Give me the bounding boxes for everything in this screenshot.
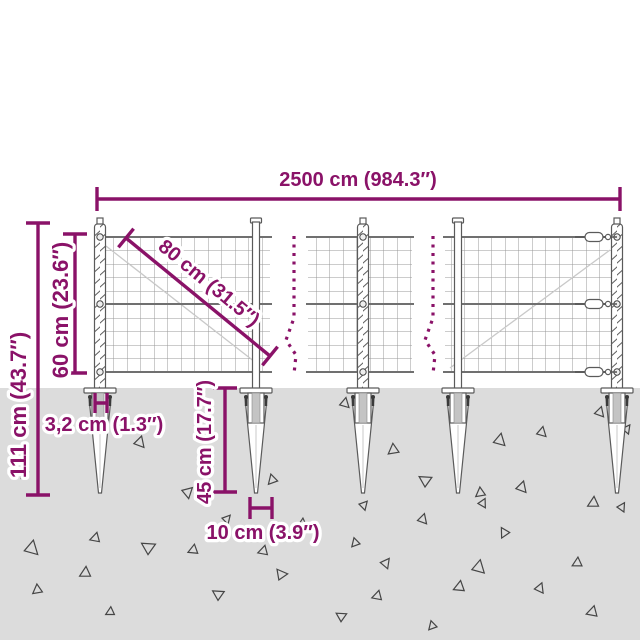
fence-dimension-diagram: 2500 cm (984.3″) 111 cm (43.7″) 60 cm (2… [0,0,640,640]
end-post-left [95,218,106,390]
spike-length-label: 45 cm (17.7″) [194,380,216,504]
diagram-canvas: 2500 cm (984.3″) 111 cm (43.7″) 60 cm (2… [0,0,640,640]
line-post-middle [358,218,369,390]
total-height-label: 111 cm (43.7″) [6,332,31,478]
mesh-height-label: 60 cm (23.6″) [48,242,73,379]
post-width-label: 3,2 cm (1.3″) [45,414,164,436]
total-width-label: 2500 cm (984.3″) [279,169,436,191]
line-post [453,218,464,390]
spike-width-label: 10 cm (3.9″) [207,522,320,544]
